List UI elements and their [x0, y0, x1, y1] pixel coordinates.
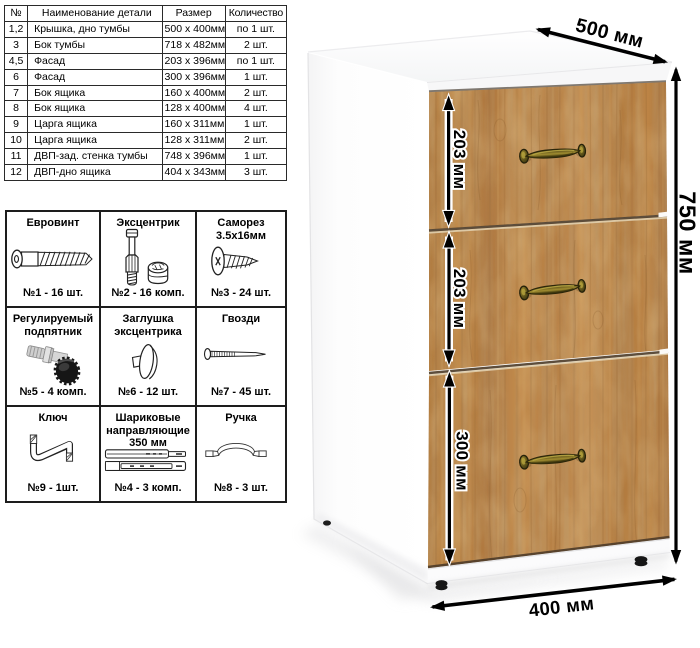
- svg-text:203 мм: 203 мм: [450, 269, 469, 328]
- svg-text:750 мм: 750 мм: [675, 191, 700, 275]
- svg-text:203 мм: 203 мм: [450, 130, 469, 189]
- svg-text:300 мм: 300 мм: [453, 431, 472, 490]
